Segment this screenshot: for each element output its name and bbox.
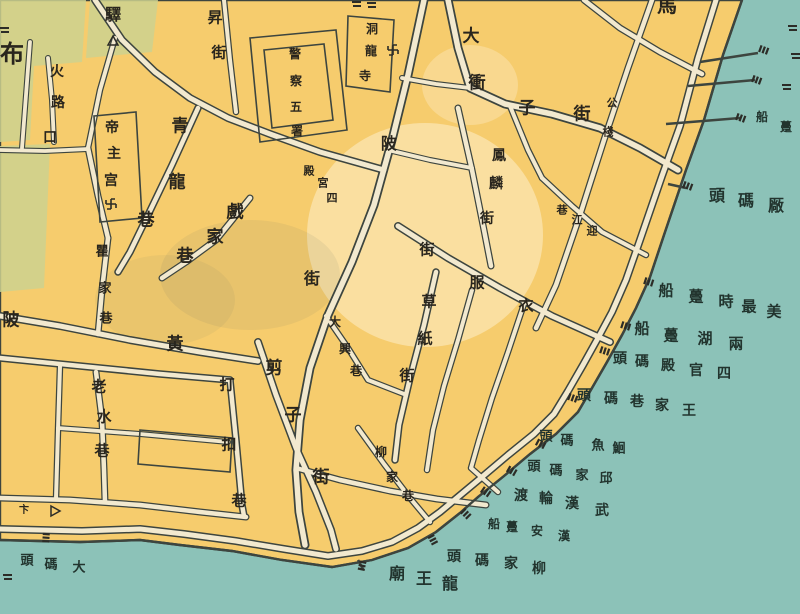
map-drawing <box>0 0 800 614</box>
historical-map-canvas[interactable]: 布火路口驛帝主宫青龍巷戲家巷瞿家巷陂黃老水巷打扣巷剪子街大興巷柳家巷草紙街街服衣… <box>0 0 800 614</box>
pier-icon <box>42 533 50 543</box>
